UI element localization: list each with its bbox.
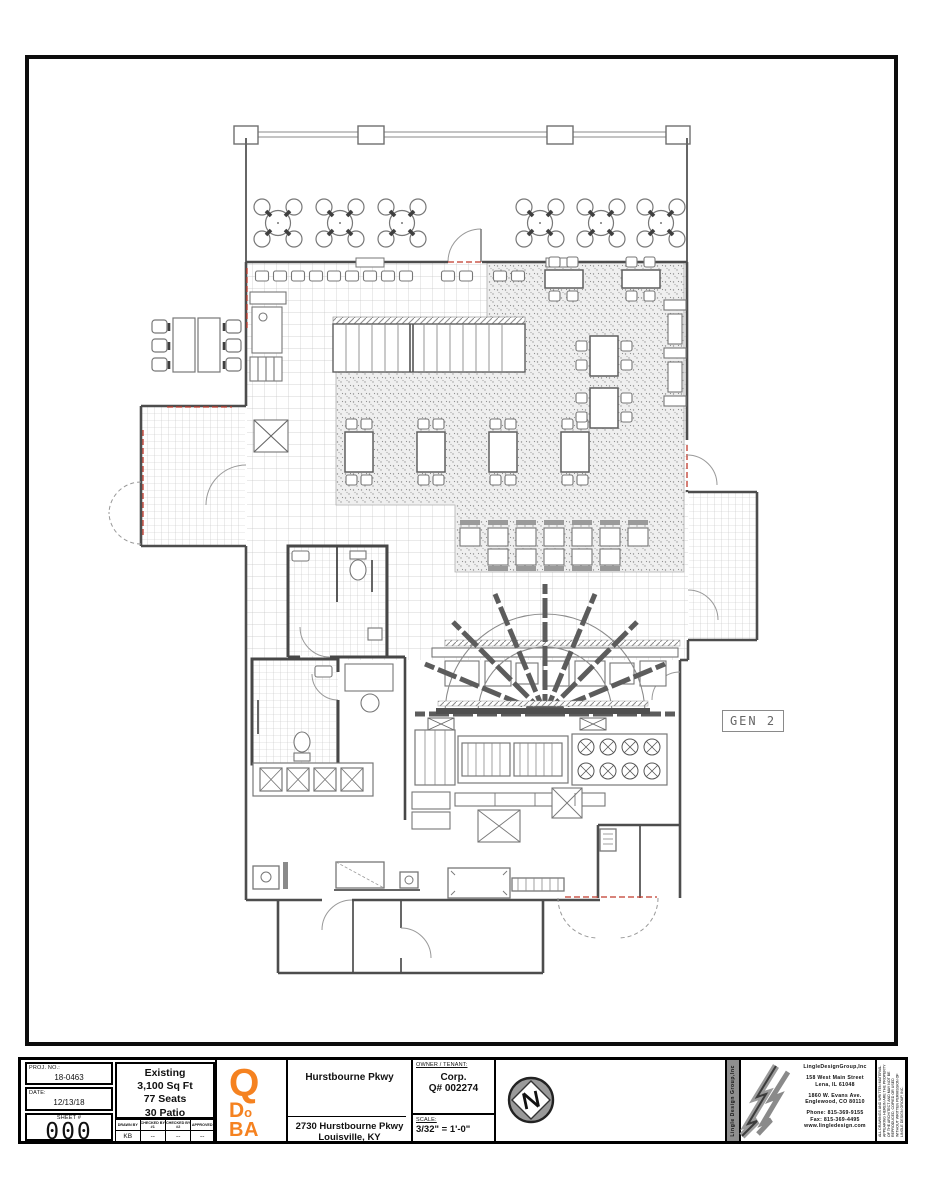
scale-label: SCALE: — [413, 1115, 494, 1123]
copyright-disclaimer: ALL DRAWINGS AND WRITTEN MATERIAL APPEAR… — [875, 1060, 907, 1141]
qdoba-logo-q: Q — [229, 1064, 286, 1103]
qdoba-logo-ba: BA — [229, 1120, 286, 1140]
project-address2: Louisville, KY — [288, 1132, 411, 1143]
firm-web: www.lingledesign.com — [797, 1123, 873, 1129]
sign-value: -- — [141, 1131, 166, 1142]
existing-line2: 3,100 Sq Ft — [117, 1080, 213, 1093]
owner-line2: Q# 002274 — [413, 1083, 494, 1094]
existing-line4: 30 Patio — [117, 1107, 213, 1120]
existing-line1: Existing — [117, 1067, 213, 1080]
project-address1: 2730 Hurstbourne Pkwy — [288, 1121, 411, 1132]
sign-value: -- — [191, 1131, 214, 1142]
sign-header: APPROVED — [191, 1120, 214, 1131]
project-name: Hurstbourne Pkwy — [288, 1060, 411, 1083]
date-value: 12/13/18 — [27, 1096, 111, 1107]
north-arrow-cell — [494, 1060, 725, 1141]
firm-name: LingleDesignGroup,Inc — [797, 1064, 873, 1070]
qdoba-logo-cell: Q Do BA — [215, 1060, 286, 1141]
sheet-border — [25, 55, 898, 1046]
sign-header: CHECKED BY #2 — [166, 1120, 191, 1131]
sign-table: DRAWN BY CHECKED BY #1 CHECKED BY #2 APP… — [115, 1119, 215, 1143]
sheet-number: 000 — [27, 1121, 111, 1143]
date-box: DATE: 12/13/18 — [25, 1087, 113, 1111]
owner-scale-cell: OWNER / TENANT: Corp. Q# 002274 SCALE: 3… — [411, 1060, 494, 1141]
firm-address4: Englewood, CO 80110 — [797, 1099, 873, 1105]
drawing-sheet: GEN 2 PROJ. NO.: 18-0463 DATE: 12/13/18 … — [0, 0, 927, 1200]
qdoba-logo: Q Do BA — [217, 1060, 286, 1140]
firm-cell: Lingle Design Group,Inc LingleDesignGrou… — [725, 1060, 905, 1141]
sign-value: -- — [166, 1131, 191, 1142]
scale-value: 3/32" = 1'-0" — [413, 1123, 494, 1135]
owner-line1: Corp. — [413, 1068, 494, 1083]
sign-header: DRAWN BY — [116, 1120, 141, 1131]
firm-phone: Phone: 815-369-9155 — [797, 1110, 873, 1116]
owner-label: OWNER / TENANT: — [413, 1060, 494, 1068]
existing-line3: 77 Seats — [117, 1093, 213, 1106]
sign-header: CHECKED BY #1 — [141, 1120, 166, 1131]
firm-vertical-name: Lingle Design Group,Inc — [727, 1060, 741, 1141]
proj-no-label: PROJ. NO.: — [27, 1064, 111, 1071]
qdoba-logo-o: o — [244, 1105, 252, 1120]
firm-address-block: LingleDesignGroup,Inc 158 West Main Stre… — [797, 1064, 873, 1129]
title-block: PROJ. NO.: 18-0463 DATE: 12/13/18 SHEET … — [18, 1057, 908, 1144]
sheet-box: SHEET # 000 — [25, 1113, 113, 1141]
proj-no-value: 18-0463 — [27, 1071, 111, 1082]
proj-no-box: PROJ. NO.: 18-0463 — [25, 1062, 113, 1085]
gen-2-label: GEN 2 — [722, 710, 784, 732]
date-label: DATE: — [27, 1089, 111, 1096]
project-cell: Hurstbourne Pkwy 2730 Hurstbourne Pkwy L… — [286, 1060, 411, 1141]
sign-value: KB — [116, 1131, 141, 1142]
firm-address1: 158 West Main Street — [797, 1075, 873, 1081]
existing-box: Existing 3,100 Sq Ft 77 Seats 30 Patio — [115, 1062, 215, 1119]
